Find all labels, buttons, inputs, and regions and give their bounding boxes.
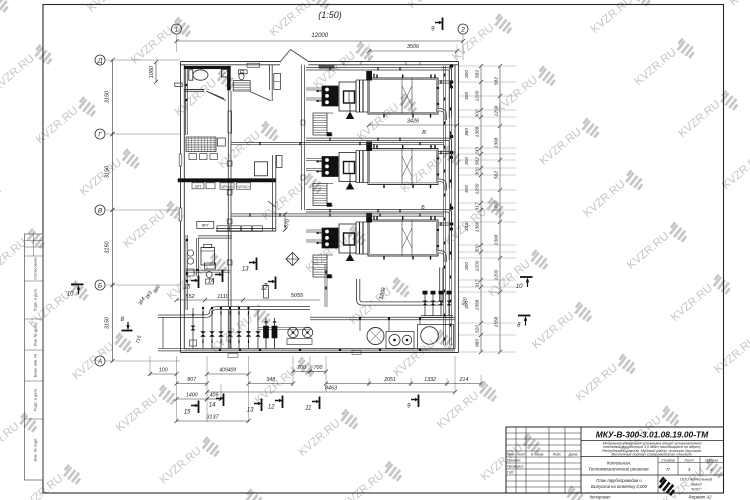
svg-text:3137: 3137 — [206, 415, 219, 421]
svg-text:317: 317 — [475, 279, 481, 287]
svg-text:1110: 1110 — [217, 294, 229, 300]
svg-text:Согласовано: Согласовано — [34, 257, 38, 280]
svg-text:317: 317 — [475, 202, 481, 210]
svg-text:3150: 3150 — [105, 165, 111, 178]
svg-text:552: 552 — [185, 294, 194, 300]
svg-text:1368: 1368 — [475, 126, 481, 137]
svg-text:1558: 1558 — [494, 316, 500, 327]
svg-text:1060: 1060 — [149, 65, 155, 78]
svg-text:12: 12 — [261, 286, 268, 292]
svg-text:Б: Б — [98, 282, 102, 289]
svg-text:Изм.: Изм. — [507, 453, 514, 457]
svg-text:3506: 3506 — [407, 44, 420, 50]
svg-text:1368: 1368 — [494, 137, 500, 148]
svg-text:ШУ1: ШУ1 — [195, 184, 202, 188]
svg-text:3150: 3150 — [105, 240, 111, 253]
svg-text:МКУ-В-300-3.01.08.19.00-ТМ: МКУ-В-300-3.01.08.19.00-ТМ — [596, 430, 709, 440]
svg-text:Б: Б — [421, 205, 425, 211]
svg-text:Стадия: Стадия — [661, 458, 675, 462]
svg-text:300: 300 — [464, 262, 470, 270]
svg-text:5055: 5055 — [291, 293, 304, 299]
svg-text:1368: 1368 — [475, 221, 481, 232]
svg-text:360: 360 — [464, 128, 470, 136]
svg-text:"КЗО": "КЗО" — [691, 486, 702, 491]
svg-text:1200: 1200 — [494, 200, 500, 211]
svg-text:11: 11 — [305, 406, 311, 412]
svg-text:3150: 3150 — [105, 316, 111, 329]
svg-text:582: 582 — [494, 77, 500, 85]
svg-text:409: 409 — [210, 393, 219, 399]
svg-text:Лист: Лист — [516, 453, 526, 457]
svg-text:409409: 409409 — [219, 367, 236, 373]
svg-text:2: 2 — [460, 26, 465, 33]
svg-text:Г: Г — [98, 131, 102, 138]
svg-text:10: 10 — [67, 291, 74, 297]
svg-text:1400: 1400 — [186, 393, 198, 399]
svg-text:1200: 1200 — [494, 105, 500, 116]
svg-text:582: 582 — [475, 70, 481, 78]
svg-text:Инв. № подл.: Инв. № подл. — [34, 438, 38, 462]
svg-text:3426: 3426 — [407, 118, 420, 124]
svg-text:15: 15 — [184, 285, 191, 291]
svg-text:N докум.: N докум. — [531, 453, 544, 457]
svg-text:582: 582 — [475, 157, 481, 165]
svg-text:Котельная.: Котельная. — [607, 461, 631, 466]
svg-text:12000: 12000 — [311, 33, 328, 39]
svg-text:214: 214 — [459, 377, 469, 383]
svg-text:1332: 1332 — [424, 377, 436, 383]
svg-text:300: 300 — [464, 301, 470, 309]
svg-text:ЩР(ЩА): ЩР(ЩА) — [221, 185, 233, 189]
svg-text:Выпусков на отметку 0,000: Выпусков на отметку 0,000 — [591, 484, 648, 489]
svg-text:ГиП: ГиП — [507, 471, 514, 475]
svg-text:700: 700 — [297, 365, 306, 371]
svg-text:Взам. инв. №: Взам. инв. № — [34, 354, 38, 378]
svg-text:1558: 1558 — [475, 299, 481, 310]
svg-text:1368: 1368 — [494, 234, 500, 245]
svg-text:1200: 1200 — [494, 269, 500, 280]
svg-text:348: 348 — [266, 377, 275, 383]
svg-text:Д: Д — [97, 57, 103, 64]
svg-text:300: 300 — [475, 244, 481, 252]
svg-text:300: 300 — [464, 70, 470, 78]
svg-text:700: 700 — [314, 365, 323, 371]
svg-text:100: 100 — [159, 367, 168, 373]
svg-text:План трубопроводов и: План трубопроводов и — [596, 478, 642, 483]
svg-text:1200: 1200 — [475, 260, 481, 271]
svg-text:Подп.: Подп. — [553, 453, 562, 457]
svg-text:Дата: Дата — [568, 453, 578, 457]
svg-text:2051: 2051 — [383, 377, 396, 383]
svg-text:1: 1 — [175, 26, 179, 33]
svg-text:300: 300 — [475, 167, 481, 175]
svg-text:Формат А2: Формат А2 — [689, 495, 713, 500]
svg-text:Восточный портал Северомуйског: Восточный портал Северомуйского тоннеля. — [612, 453, 693, 457]
svg-text:ВРУ: ВРУ — [202, 224, 209, 228]
svg-text:В: В — [98, 207, 103, 214]
svg-text:980: 980 — [475, 339, 481, 347]
svg-text:1200: 1200 — [475, 183, 481, 194]
svg-text:14: 14 — [208, 279, 215, 285]
svg-text:А: А — [97, 358, 102, 365]
svg-text:300: 300 — [475, 109, 481, 117]
svg-text:Листов: Листов — [704, 458, 718, 462]
svg-text:Проверил: Проверил — [507, 465, 523, 469]
svg-text:15: 15 — [184, 410, 191, 416]
svg-text:Инв. № дубл.: Инв. № дубл. — [34, 323, 38, 347]
svg-text:(1:50): (1:50) — [318, 10, 342, 20]
svg-text:807: 807 — [187, 377, 197, 383]
svg-text:300: 300 — [464, 157, 470, 165]
svg-text:Подп. и дата: Подп. и дата — [34, 288, 38, 311]
svg-text:3150: 3150 — [105, 90, 111, 103]
svg-text:Копировал: Копировал — [590, 495, 611, 500]
svg-text:ЩР(ЩО): ЩР(ЩО) — [238, 185, 250, 189]
svg-text:Подп. и дата: Подп. и дата — [34, 388, 38, 411]
svg-text:В: В — [422, 130, 426, 136]
svg-text:300: 300 — [464, 185, 470, 193]
svg-text:13: 13 — [242, 267, 249, 273]
svg-text:13: 13 — [247, 408, 254, 414]
svg-text:Лист: Лист — [683, 458, 693, 462]
svg-text:12: 12 — [268, 405, 275, 411]
svg-text:Тепломеханические решения.: Тепломеханические решения. — [588, 467, 649, 472]
svg-text:8463: 8463 — [325, 386, 338, 392]
svg-text:520: 520 — [475, 325, 481, 333]
svg-text:Проект.: Проект. — [507, 459, 521, 463]
svg-text:10: 10 — [516, 284, 523, 290]
svg-text:243: 243 — [464, 223, 470, 232]
svg-text:14: 14 — [209, 403, 216, 409]
